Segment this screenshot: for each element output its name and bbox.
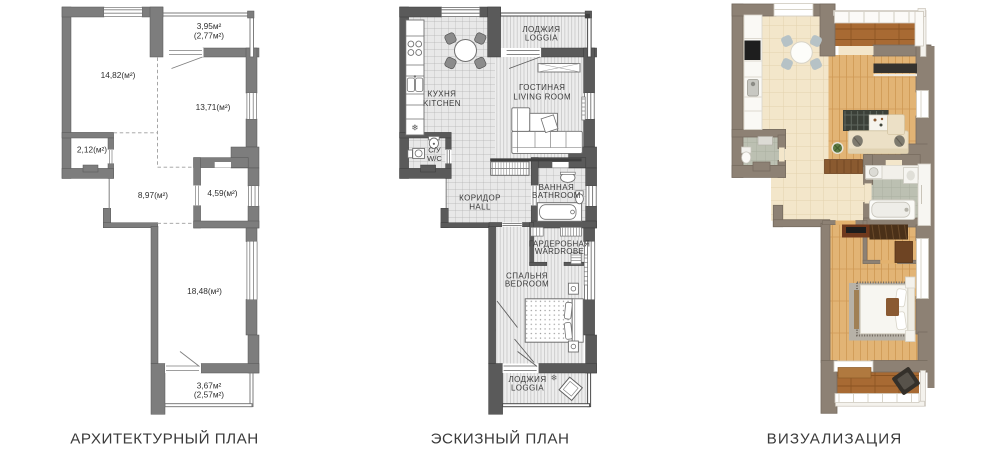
svg-text:❄: ❄	[551, 374, 558, 383]
svg-text:18,48(м²): 18,48(м²)	[187, 286, 222, 296]
svg-text:LOGGIA: LOGGIA	[525, 34, 558, 43]
svg-text:ГОСТИНАЯ: ГОСТИНАЯ	[519, 83, 565, 92]
svg-text:КОРИДОР: КОРИДОР	[459, 193, 501, 202]
svg-text:WARDROBE: WARDROBE	[535, 247, 584, 256]
svg-text:2,12(м²): 2,12(м²)	[77, 145, 107, 155]
svg-text:ЛОДЖИЯ: ЛОДЖИЯ	[522, 25, 560, 34]
svg-text:(2,77м²): (2,77м²)	[194, 31, 224, 41]
svg-text:14,82(м²): 14,82(м²)	[101, 70, 136, 80]
svg-text:LOGGIA: LOGGIA	[511, 384, 544, 393]
svg-text:BEDROOM: BEDROOM	[505, 279, 549, 288]
svg-text:КУХНЯ: КУХНЯ	[428, 90, 457, 99]
svg-text:3,95м²: 3,95м²	[197, 21, 222, 31]
svg-text:❄: ❄	[411, 123, 418, 133]
svg-text:(2,57м²): (2,57м²)	[194, 390, 224, 400]
svg-text:BATHROOM: BATHROOM	[532, 191, 581, 200]
svg-text:ЛОДЖИЯ: ЛОДЖИЯ	[508, 375, 546, 384]
svg-text:LIVING ROOM: LIVING ROOM	[513, 92, 571, 101]
svg-text:13,71(м²): 13,71(м²)	[196, 102, 231, 112]
svg-text:АРХИТЕКТУРНЫЙ ПЛАН: АРХИТЕКТУРНЫЙ ПЛАН	[70, 430, 258, 448]
svg-text:HALL: HALL	[469, 203, 491, 212]
svg-text:KITCHEN: KITCHEN	[423, 99, 461, 108]
svg-text:8,97(м²): 8,97(м²)	[138, 190, 168, 200]
svg-text:ВИЗУАЛИЗАЦИЯ: ВИЗУАЛИЗАЦИЯ	[767, 431, 903, 448]
svg-text:W/C: W/C	[427, 154, 442, 163]
svg-text:ЭСКИЗНЫЙ ПЛАН: ЭСКИЗНЫЙ ПЛАН	[431, 430, 570, 448]
svg-text:4,59(м²): 4,59(м²)	[207, 188, 237, 198]
